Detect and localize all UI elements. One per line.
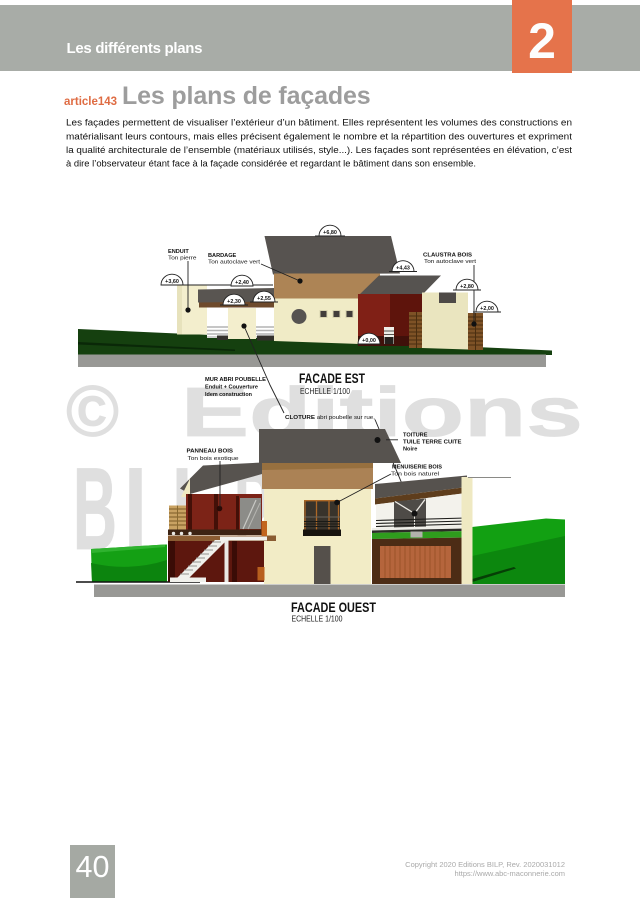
svg-text:+2,40: +2,40 xyxy=(235,280,249,286)
svg-text:Idem construction: Idem construction xyxy=(205,392,252,398)
svg-text:+3,60: +3,60 xyxy=(165,279,179,285)
svg-text:MUR ABRI POUBELLE: MUR ABRI POUBELLE xyxy=(205,377,266,383)
svg-text:TOITURE: TOITURE xyxy=(403,433,428,439)
svg-text:+2,55: +2,55 xyxy=(257,296,271,302)
svg-text:+0,00: +0,00 xyxy=(362,338,376,344)
svg-text:PANNEAU BOIS: PANNEAU BOIS xyxy=(187,449,234,455)
svg-text:ECHELLE 1/100: ECHELLE 1/100 xyxy=(300,387,351,396)
svg-text:CLAUSTRA BOIS: CLAUSTRA BOIS xyxy=(423,253,472,259)
svg-text:Ton autoclave vert: Ton autoclave vert xyxy=(424,259,477,265)
svg-text:FACADE EST: FACADE EST xyxy=(299,371,366,386)
svg-text:+2,30: +2,30 xyxy=(227,299,241,305)
svg-text:ECHELLE 1/100: ECHELLE 1/100 xyxy=(292,615,344,624)
svg-text:Ton autoclave vert: Ton autoclave vert xyxy=(208,260,261,266)
svg-text:Ton bois exotique: Ton bois exotique xyxy=(188,456,239,462)
svg-text:Ton bois naturel: Ton bois naturel xyxy=(391,472,439,478)
svg-text:TUILE TERRE CUITE: TUILE TERRE CUITE xyxy=(403,440,462,446)
svg-text:©: © xyxy=(66,372,119,452)
svg-text:ENDUIT: ENDUIT xyxy=(168,249,189,255)
svg-text:+4,43: +4,43 xyxy=(396,266,410,272)
svg-text:Noire: Noire xyxy=(403,447,417,453)
svg-text:Enduit + Couverture: Enduit + Couverture xyxy=(205,385,258,391)
svg-text:+2,00: +2,00 xyxy=(480,306,494,312)
svg-text:FACADE OUEST: FACADE OUEST xyxy=(291,600,377,615)
svg-text:+2,80: +2,80 xyxy=(460,284,474,290)
svg-text:CLOTURE abri poubelle sur rue,: CLOTURE abri poubelle sur rue, xyxy=(285,415,375,421)
svg-text:Ton pierre: Ton pierre xyxy=(168,256,197,262)
svg-text:+6,80: +6,80 xyxy=(323,230,337,236)
svg-text:MENUISERIE BOIS: MENUISERIE BOIS xyxy=(392,465,442,471)
svg-text:BARDAGE: BARDAGE xyxy=(208,253,237,259)
